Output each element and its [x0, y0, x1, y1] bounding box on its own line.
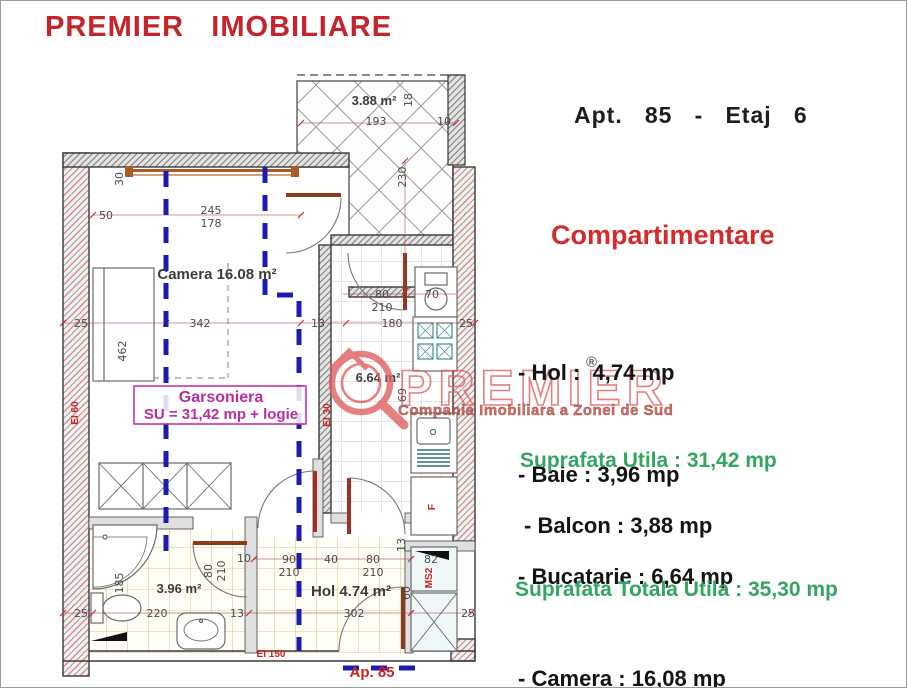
listing-image: 3.88 m²	[0, 0, 907, 688]
kitchen-label: 6.64 m²	[356, 370, 401, 385]
dimension-label: 193	[366, 115, 387, 128]
dimension-label: 25	[461, 607, 475, 620]
dimension-label: 25	[74, 317, 88, 330]
dimension-label: 80	[375, 288, 389, 301]
unit-name: Garsoniera	[179, 389, 264, 406]
kitchen-sink	[411, 413, 457, 473]
dimension-label: 70	[425, 288, 439, 301]
room-list: - Hol : 4,74 mp - Baie : 3,96 mp - Bucat…	[518, 288, 733, 688]
bathroom-label: 3.96 m²	[157, 581, 202, 596]
dimension-label: 178	[201, 217, 222, 230]
dimension-label: 220	[147, 607, 168, 620]
dimension-label: 245	[201, 204, 222, 217]
compartimentare-title: Compartimentare	[551, 220, 775, 251]
dimension-label: 10	[437, 115, 451, 128]
dimension-label: 69	[396, 388, 409, 402]
balcony-label: 3.88 m²	[352, 93, 397, 108]
dimension-label: 210	[215, 561, 228, 582]
camera-hall-door	[258, 471, 315, 532]
room-list-item-hol: - Hol : 4,74 mp	[518, 356, 733, 390]
dimension-label: 230	[396, 167, 409, 188]
dimension-label: 50	[99, 209, 113, 222]
dimension-label: 302	[344, 607, 365, 620]
stove	[413, 317, 457, 371]
toilet	[91, 593, 141, 623]
dimension-label: 25	[459, 317, 473, 330]
brand-title: PREMIER IMOBILIARE	[45, 11, 392, 44]
unit-summary-box: Garsoniera SU = 31,42 mp + logie	[134, 386, 306, 424]
dimension-label: 180	[382, 317, 403, 330]
dimension-label: 80	[366, 553, 380, 566]
dimension-label: 210	[279, 566, 300, 579]
dimension-label: 30	[113, 172, 126, 186]
unit-area: SU = 31,42 mp + logie	[144, 406, 298, 423]
plan-red-label: EI 150	[257, 649, 286, 660]
dimension-label: 60	[400, 586, 413, 600]
dimension-label: 210	[372, 301, 393, 314]
dimension-label: 25	[74, 607, 88, 620]
suprafata-utila-line: Suprafata Utila : 31,42 mp	[520, 449, 777, 473]
dimension-label: 13	[311, 317, 325, 330]
dimension-label: 185	[113, 573, 126, 594]
plan-red-label: EI 30	[322, 403, 333, 427]
dimension-label: 18	[402, 93, 415, 107]
apartment-tag: Ap. 85	[349, 664, 394, 681]
balcon-line: - Balcon : 3,88 mp	[524, 513, 712, 539]
dimension-label: 210	[363, 566, 384, 579]
hallway-label: Hol 4.74 m²	[311, 583, 391, 600]
dimension-label: 462	[116, 341, 129, 362]
dimension-label: 82	[424, 553, 438, 566]
plan-red-label: MS2	[424, 567, 435, 588]
bed	[93, 268, 154, 381]
dimension-label: 13	[395, 538, 408, 552]
dimension-label: 13	[230, 607, 244, 620]
dimension-label: 342	[190, 317, 211, 330]
camera-label: Camera 16.08 m²	[157, 266, 276, 283]
plan-red-label: EI 60	[70, 401, 81, 425]
dimension-label: 10	[237, 552, 251, 565]
dimension-label: 40	[324, 553, 338, 566]
suprafata-totala-line: Suprafata Totala Utila : 35,30 mp	[515, 578, 838, 602]
plan-red-label: F	[427, 504, 438, 510]
dimension-label: 80	[202, 564, 215, 578]
bathroom-sink	[177, 613, 225, 649]
dimension-label: 90	[282, 553, 296, 566]
room-list-item-camera: - Camera : 16,08 mp	[518, 662, 733, 688]
apartment-header: Apt. 85 - Etaj 6	[574, 102, 808, 129]
